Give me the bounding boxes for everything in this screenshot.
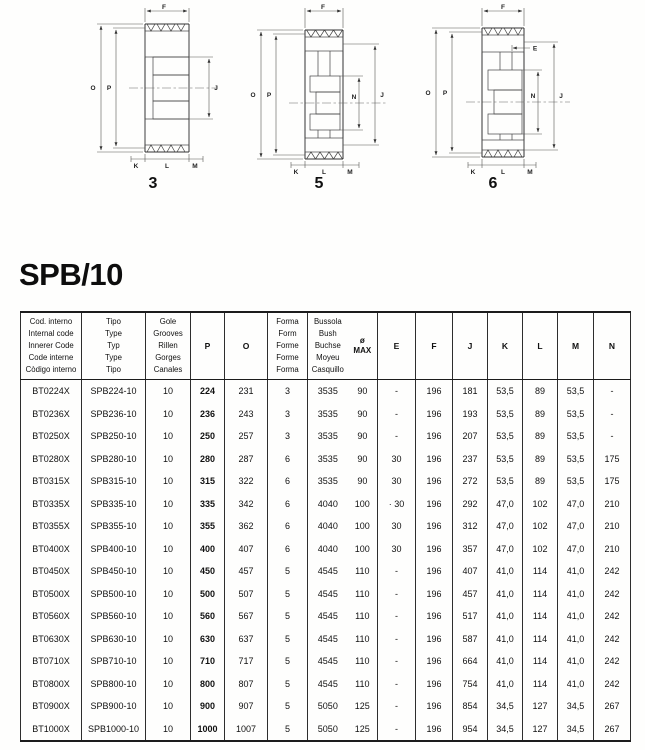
cell-code: BT0280X [21,448,82,471]
bush-header-langs: BussolaBushBuchseMoyeuCasquillo [308,316,348,376]
cell-bush: 353590 [308,470,378,493]
cell-n: 267 [594,695,631,718]
cell-k: 41,0 [488,560,523,583]
cell-m: 34,5 [558,695,594,718]
cell-e: - [378,380,416,403]
dim-label-o: O [90,85,95,92]
cell-bush: 4545110 [308,605,378,628]
cell-p: 1000 [191,718,225,742]
dim-label-n: N [352,94,357,101]
table-row: BT0315XSPB315-10103153226353590301962725… [21,470,631,493]
cell-grooves: 10 [146,515,191,538]
cell-e: - [378,718,416,742]
cell-form: 5 [268,650,308,673]
dim-label-m: M [527,169,532,176]
cell-e: - [378,403,416,426]
cell-l: 89 [523,403,558,426]
cell-form: 6 [268,493,308,516]
cell-type: SPB280-10 [82,448,146,471]
cell-e: · 30 [378,493,416,516]
cell-o: 243 [225,403,268,426]
cell-grooves: 10 [146,448,191,471]
form3-pulley-drawing: F O P J K L M [85,2,235,174]
dim-label-j: J [214,85,218,92]
cell-o: 287 [225,448,268,471]
cell-l: 114 [523,673,558,696]
diameter-max-value: 110 [348,611,377,621]
diameter-max-value: 90 [348,386,377,396]
cell-type: SPB335-10 [82,493,146,516]
cell-m: 41,0 [558,605,594,628]
cell-form: 3 [268,403,308,426]
cell-n: 242 [594,605,631,628]
cell-m: 41,0 [558,650,594,673]
column-header-grooves: GoleGroovesRillenGorgesCanales [146,312,191,380]
column-header-p: P [191,312,225,380]
column-header-bush: BussolaBushBuchseMoyeuCasquilloøMAX [308,312,378,380]
cell-type: SPB400-10 [82,538,146,561]
diameter-max-value: 110 [348,634,377,644]
bush-value: 4545 [308,566,348,576]
cell-m: 47,0 [558,538,594,561]
cell-grooves: 10 [146,605,191,628]
cell-f: 196 [416,448,453,471]
cell-l: 127 [523,718,558,742]
cell-bush: 4545110 [308,673,378,696]
cell-j: 664 [453,650,488,673]
cell-e: - [378,650,416,673]
cell-j: 407 [453,560,488,583]
cell-f: 196 [416,718,453,742]
cell-form: 6 [268,470,308,493]
cell-grooves: 10 [146,380,191,403]
dim-label-k: K [294,169,299,176]
dim-label-p: P [107,85,112,92]
catalog-page: F O P J K L M 3 [0,0,645,750]
table-row: BT0560XSPB560-101056056754545110-1965174… [21,605,631,628]
column-header-l: L [523,312,558,380]
cell-e: - [378,583,416,606]
cell-form: 6 [268,515,308,538]
dim-label-e: E [533,46,538,53]
cell-k: 41,0 [488,628,523,651]
diameter-max-value: 90 [348,454,377,464]
cell-code: BT0400X [21,538,82,561]
cell-bush: 4545110 [308,650,378,673]
cell-n: 267 [594,718,631,742]
cell-o: 342 [225,493,268,516]
cell-n: 210 [594,493,631,516]
table-row: BT0800XSPB800-101080080754545110-1967544… [21,673,631,696]
cell-bush: 4545110 [308,583,378,606]
cell-f: 196 [416,538,453,561]
cell-j: 357 [453,538,488,561]
table-row: BT0710XSPB710-101071071754545110-1966644… [21,650,631,673]
cell-form: 5 [268,583,308,606]
cell-n: - [594,425,631,448]
cell-k: 47,0 [488,493,523,516]
diameter-max-value: 125 [348,701,377,711]
cell-bush: 4545110 [308,560,378,583]
cell-n: - [594,403,631,426]
cell-m: 53,5 [558,470,594,493]
cell-type: SPB500-10 [82,583,146,606]
cell-bush: 353590 [308,425,378,448]
cell-grooves: 10 [146,538,191,561]
dim-label-p: P [267,92,272,99]
cell-type: SPB630-10 [82,628,146,651]
column-header-form: FormaFormFormeFormeForma [268,312,308,380]
diameter-max-value: 90 [348,476,377,486]
bush-value: 3535 [308,386,348,396]
cell-p: 335 [191,493,225,516]
cell-e: 30 [378,538,416,561]
bush-value: 4545 [308,611,348,621]
cell-code: BT0800X [21,673,82,696]
bush-value: 4545 [308,656,348,666]
dim-label-k: K [471,169,476,176]
cell-code: BT0236X [21,403,82,426]
cell-type: SPB800-10 [82,673,146,696]
cell-bush: 4040100 [308,493,378,516]
cell-p: 560 [191,605,225,628]
cell-p: 280 [191,448,225,471]
table-row: BT0400XSPB400-10104004076404010030196357… [21,538,631,561]
column-header-o: O [225,312,268,380]
column-header-e: E [378,312,416,380]
cell-k: 53,5 [488,470,523,493]
cell-m: 53,5 [558,425,594,448]
cell-m: 41,0 [558,628,594,651]
table-row: BT0450XSPB450-101045045754545110-1964074… [21,560,631,583]
dim-label-f: F [162,4,166,11]
cell-e: 30 [378,470,416,493]
cell-f: 196 [416,583,453,606]
cell-f: 196 [416,673,453,696]
cell-n: - [594,380,631,403]
cell-code: BT0450X [21,560,82,583]
cell-bush: 4040100 [308,538,378,561]
cell-grooves: 10 [146,628,191,651]
cell-e: - [378,673,416,696]
cell-code: BT1000X [21,718,82,742]
cell-code: BT0560X [21,605,82,628]
table-row: BT0335XSPB335-101033534264040100· 301962… [21,493,631,516]
diameter-max-value: 110 [348,566,377,576]
table-row: BT0280XSPB280-10102802876353590301962375… [21,448,631,471]
cell-l: 89 [523,448,558,471]
column-header-n: N [594,312,631,380]
cell-type: SPB560-10 [82,605,146,628]
dim-label-o: O [425,90,430,97]
form5-pulley-drawing: F O P N J K L M [247,2,397,176]
cell-k: 47,0 [488,538,523,561]
cell-grooves: 10 [146,650,191,673]
page-title: SPB/10 [19,257,123,293]
cell-grooves: 10 [146,673,191,696]
cell-o: 507 [225,583,268,606]
cell-o: 257 [225,425,268,448]
column-header-code: Cod. internoInternal codeInnerer CodeCod… [21,312,82,380]
cell-p: 250 [191,425,225,448]
dim-label-f: F [321,4,325,11]
dim-label-j: J [559,93,563,100]
cell-o: 567 [225,605,268,628]
cell-j: 754 [453,673,488,696]
dim-label-j: J [380,92,384,99]
cell-j: 517 [453,605,488,628]
cell-f: 196 [416,425,453,448]
diameter-max-value: 125 [348,724,377,734]
cell-n: 242 [594,560,631,583]
cell-grooves: 10 [146,425,191,448]
cell-p: 500 [191,583,225,606]
cell-form: 5 [268,718,308,742]
bush-value: 4545 [308,679,348,689]
cell-f: 196 [416,628,453,651]
cell-p: 900 [191,695,225,718]
cell-f: 196 [416,695,453,718]
cell-grooves: 10 [146,560,191,583]
cell-bush: 4545110 [308,628,378,651]
cell-e: - [378,560,416,583]
cell-e: - [378,425,416,448]
diameter-max-value: 90 [348,409,377,419]
cell-form: 3 [268,380,308,403]
cell-m: 41,0 [558,560,594,583]
cell-o: 362 [225,515,268,538]
cell-code: BT0250X [21,425,82,448]
dim-label-n: N [531,93,536,100]
cell-type: SPB1000-10 [82,718,146,742]
column-header-k: K [488,312,523,380]
cell-grooves: 10 [146,470,191,493]
cell-k: 41,0 [488,673,523,696]
cell-code: BT0630X [21,628,82,651]
diameter-max-value: 100 [348,521,377,531]
bush-value: 3535 [308,409,348,419]
cell-bush: 353590 [308,403,378,426]
dim-label-k: K [134,163,139,170]
cell-l: 102 [523,515,558,538]
cell-n: 210 [594,538,631,561]
cell-n: 175 [594,448,631,471]
cell-e: 30 [378,515,416,538]
cell-bush: 353590 [308,380,378,403]
cell-type: SPB710-10 [82,650,146,673]
cell-type: SPB450-10 [82,560,146,583]
diameter-max-value: 110 [348,589,377,599]
cell-p: 224 [191,380,225,403]
cell-m: 47,0 [558,515,594,538]
cell-j: 181 [453,380,488,403]
cell-j: 207 [453,425,488,448]
cell-bush: 5050125 [308,695,378,718]
cell-m: 41,0 [558,673,594,696]
cell-e: - [378,605,416,628]
cell-type: SPB315-10 [82,470,146,493]
cell-l: 114 [523,583,558,606]
cell-n: 242 [594,673,631,696]
cell-o: 322 [225,470,268,493]
table-row: BT0630XSPB630-101063063754545110-1965874… [21,628,631,651]
cell-type: SPB224-10 [82,380,146,403]
bush-value: 5050 [308,701,348,711]
cell-e: - [378,695,416,718]
cell-k: 41,0 [488,583,523,606]
diameter-max-value: 100 [348,544,377,554]
cell-form: 5 [268,605,308,628]
cell-code: BT0710X [21,650,82,673]
cell-type: SPB250-10 [82,425,146,448]
cell-l: 102 [523,538,558,561]
bush-value: 4040 [308,544,348,554]
form6-number: 6 [480,175,506,193]
diameter-max-value: 90 [348,431,377,441]
cell-o: 637 [225,628,268,651]
table-body: BT0224XSPB224-10102242313353590-19618153… [21,380,631,742]
cell-l: 114 [523,605,558,628]
bush-value: 4040 [308,499,348,509]
cell-j: 292 [453,493,488,516]
cell-form: 5 [268,695,308,718]
cell-type: SPB900-10 [82,695,146,718]
cell-p: 315 [191,470,225,493]
cell-form: 6 [268,538,308,561]
cell-o: 717 [225,650,268,673]
bush-value: 4040 [308,521,348,531]
cell-l: 127 [523,695,558,718]
cell-j: 457 [453,583,488,606]
cell-p: 400 [191,538,225,561]
cell-l: 89 [523,425,558,448]
cell-k: 41,0 [488,650,523,673]
cell-p: 355 [191,515,225,538]
table-row: BT0355XSPB355-10103553626404010030196312… [21,515,631,538]
cell-j: 854 [453,695,488,718]
dim-label-p: P [443,90,448,97]
cell-bush: 4040100 [308,515,378,538]
cell-bush: 5050125 [308,718,378,742]
cell-f: 196 [416,605,453,628]
cell-f: 196 [416,380,453,403]
cell-type: SPB355-10 [82,515,146,538]
diameter-max-value: 110 [348,679,377,689]
cell-o: 231 [225,380,268,403]
cell-bush: 353590 [308,448,378,471]
bush-value: 3535 [308,454,348,464]
column-header-m: M [558,312,594,380]
cell-j: 193 [453,403,488,426]
table-row: BT0236XSPB236-10102362433353590-19619353… [21,403,631,426]
cell-o: 807 [225,673,268,696]
cell-code: BT0224X [21,380,82,403]
table-row: BT0250XSPB250-10102502573353590-19620753… [21,425,631,448]
cell-p: 630 [191,628,225,651]
cell-e: 30 [378,448,416,471]
cell-j: 237 [453,448,488,471]
cell-code: BT0335X [21,493,82,516]
cell-code: BT0500X [21,583,82,606]
dim-label-m: M [347,169,352,176]
form3-number: 3 [140,175,166,193]
diameter-max-header: øMAX [348,336,377,356]
bush-value: 3535 [308,431,348,441]
cell-grooves: 10 [146,493,191,516]
diameter-max-value: 110 [348,656,377,666]
cell-l: 89 [523,470,558,493]
bush-value: 3535 [308,476,348,486]
dim-label-m: M [192,163,197,170]
bush-value: 4545 [308,634,348,644]
cell-o: 457 [225,560,268,583]
cell-grooves: 10 [146,403,191,426]
cell-f: 196 [416,403,453,426]
cell-grooves: 10 [146,718,191,742]
cell-f: 196 [416,493,453,516]
cell-l: 114 [523,650,558,673]
cell-m: 47,0 [558,493,594,516]
form5-number: 5 [306,175,332,193]
table-row: BT0500XSPB500-101050050754545110-1964574… [21,583,631,606]
cell-p: 800 [191,673,225,696]
cell-n: 242 [594,628,631,651]
cell-f: 196 [416,470,453,493]
cell-f: 196 [416,650,453,673]
cell-code: BT0900X [21,695,82,718]
dim-label-f: F [501,4,505,11]
cell-e: - [378,628,416,651]
cell-k: 47,0 [488,515,523,538]
cell-n: 210 [594,515,631,538]
column-header-f: F [416,312,453,380]
cell-o: 1007 [225,718,268,742]
cell-n: 242 [594,583,631,606]
cell-k: 34,5 [488,718,523,742]
cell-o: 907 [225,695,268,718]
cell-k: 41,0 [488,605,523,628]
cell-k: 53,5 [488,380,523,403]
column-header-j: J [453,312,488,380]
cell-code: BT0355X [21,515,82,538]
cell-m: 53,5 [558,403,594,426]
cell-j: 312 [453,515,488,538]
cell-k: 53,5 [488,425,523,448]
dim-label-l: L [165,163,169,170]
cell-form: 5 [268,673,308,696]
cell-j: 587 [453,628,488,651]
table-row: BT0900XSPB900-101090090755050125-1968543… [21,695,631,718]
dim-label-o: O [250,92,255,99]
cell-m: 41,0 [558,583,594,606]
cell-o: 407 [225,538,268,561]
cell-l: 102 [523,493,558,516]
cell-k: 53,5 [488,403,523,426]
cell-f: 196 [416,560,453,583]
cell-p: 236 [191,403,225,426]
dimensions-table: Cod. internoInternal codeInnerer CodeCod… [20,311,631,742]
cell-j: 954 [453,718,488,742]
cell-form: 5 [268,628,308,651]
cell-m: 53,5 [558,448,594,471]
cell-l: 89 [523,380,558,403]
bush-value: 5050 [308,724,348,734]
column-header-type: TipoTypeTypTypeTipo [82,312,146,380]
cell-m: 34,5 [558,718,594,742]
cell-l: 114 [523,628,558,651]
cell-form: 5 [268,560,308,583]
cell-code: BT0315X [21,470,82,493]
